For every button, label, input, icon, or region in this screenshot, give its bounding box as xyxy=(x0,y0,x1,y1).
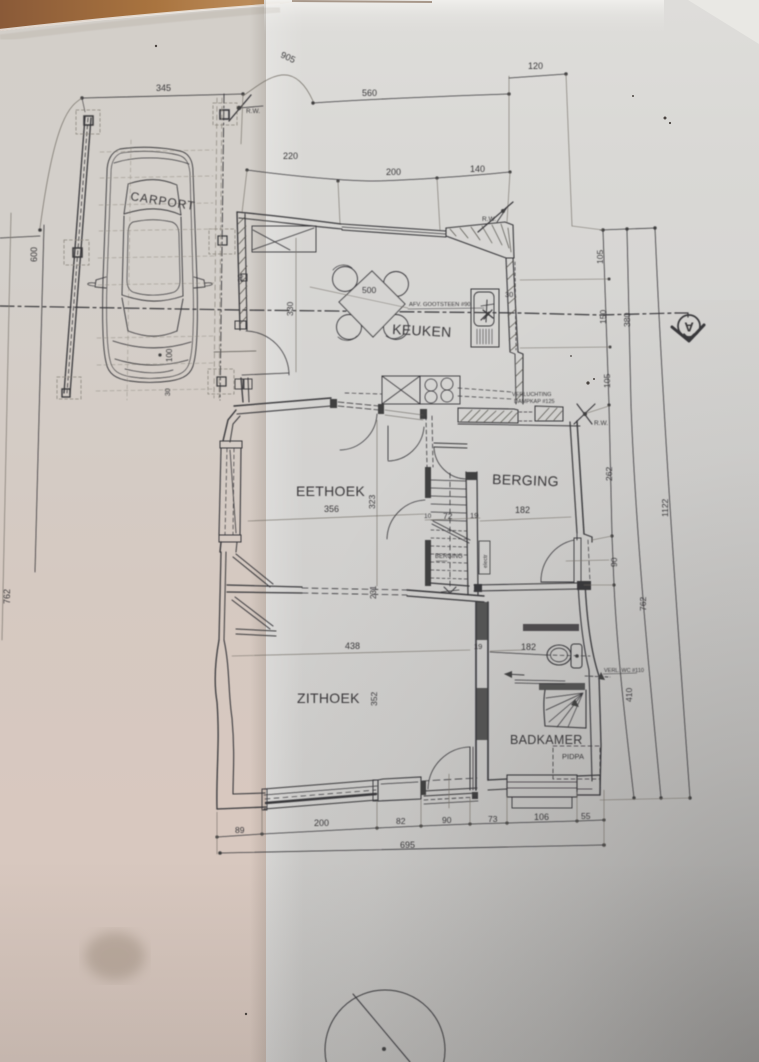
svg-text:10: 10 xyxy=(424,513,432,520)
svg-text:200: 200 xyxy=(314,818,329,828)
svg-text:105: 105 xyxy=(595,250,605,264)
svg-text:380: 380 xyxy=(622,313,632,327)
svg-text:82: 82 xyxy=(396,816,406,826)
svg-text:356: 356 xyxy=(324,504,339,514)
svg-text:30: 30 xyxy=(505,290,513,299)
svg-text:R.W.: R.W. xyxy=(482,216,496,223)
svg-text:BADKAMER: BADKAMER xyxy=(510,733,583,747)
svg-text:438: 438 xyxy=(345,641,360,651)
svg-text:DAMPKAP #125: DAMPKAP #125 xyxy=(514,399,555,405)
svg-text:105: 105 xyxy=(602,374,612,388)
svg-text:200: 200 xyxy=(386,167,401,177)
svg-text:55: 55 xyxy=(581,811,591,821)
svg-text:AFV. GOOTSTEEN #90: AFV. GOOTSTEEN #90 xyxy=(409,302,471,308)
svg-text:100: 100 xyxy=(165,348,174,362)
svg-text:695: 695 xyxy=(400,840,415,850)
svg-text:KEUKEN: KEUKEN xyxy=(392,321,452,340)
svg-text:VERLUCHTING: VERLUCHTING xyxy=(512,392,551,398)
svg-text:PIDPA: PIDPA xyxy=(562,752,584,761)
svg-text:106: 106 xyxy=(534,812,549,822)
svg-text:762: 762 xyxy=(2,589,12,604)
svg-text:19: 19 xyxy=(474,642,482,651)
svg-text:140: 140 xyxy=(470,164,485,174)
svg-text:72: 72 xyxy=(443,511,453,521)
svg-text:A: A xyxy=(684,320,694,335)
svg-text:BERGING: BERGING xyxy=(492,471,559,489)
svg-text:89: 89 xyxy=(235,825,245,835)
svg-text:90: 90 xyxy=(609,557,619,567)
svg-text:182: 182 xyxy=(515,505,530,515)
svg-text:150: 150 xyxy=(598,310,608,324)
svg-text:500: 500 xyxy=(362,285,376,295)
svg-text:330: 330 xyxy=(285,302,295,316)
svg-text:182: 182 xyxy=(521,642,536,652)
svg-text:352: 352 xyxy=(369,692,379,706)
svg-text:30: 30 xyxy=(165,388,172,396)
svg-text:73: 73 xyxy=(488,814,498,824)
svg-text:1122: 1122 xyxy=(660,498,670,517)
svg-text:electr: electr xyxy=(483,554,489,568)
svg-text:20: 20 xyxy=(238,274,245,282)
svg-text:560: 560 xyxy=(362,88,377,98)
svg-text:R.W.: R.W. xyxy=(246,108,260,115)
svg-text:R.W.: R.W. xyxy=(594,420,608,427)
svg-text:ZITHOEK: ZITHOEK xyxy=(297,690,360,706)
svg-text:231: 231 xyxy=(369,585,378,599)
svg-text:410: 410 xyxy=(624,688,634,702)
svg-text:220: 220 xyxy=(283,151,298,161)
svg-text:323: 323 xyxy=(367,495,377,509)
svg-text:762: 762 xyxy=(638,597,648,611)
svg-text:345: 345 xyxy=(156,83,171,93)
svg-text:262: 262 xyxy=(604,467,614,481)
svg-text:600: 600 xyxy=(29,247,39,262)
svg-text:19: 19 xyxy=(470,511,478,520)
svg-text:BERGING: BERGING xyxy=(435,554,463,560)
svg-text:90: 90 xyxy=(442,815,452,825)
svg-text:EETHOEK: EETHOEK xyxy=(296,483,365,499)
svg-text:120: 120 xyxy=(528,61,543,71)
